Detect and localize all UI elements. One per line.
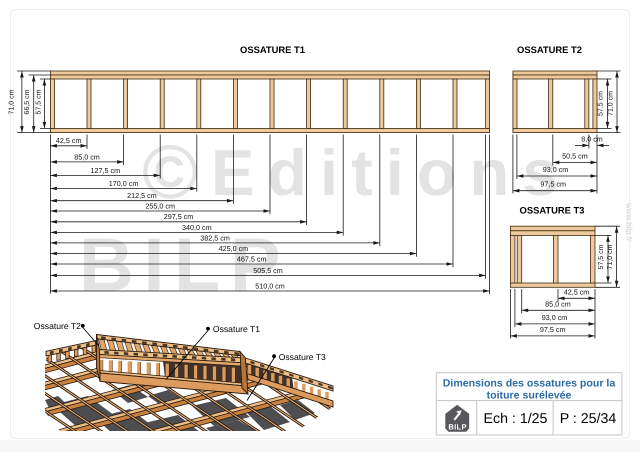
svg-text:97,5 cm: 97,5 cm [540,325,566,334]
svg-text:Ossature T3: Ossature T3 [279,352,326,362]
svg-text:382,5 cm: 382,5 cm [200,233,230,242]
svg-text:OSSATURE T3: OSSATURE T3 [520,205,585,216]
svg-text:Ossature T1: Ossature T1 [213,324,260,334]
svg-text:71,0 cm: 71,0 cm [607,91,614,116]
svg-text:50,5 cm: 50,5 cm [562,151,588,160]
svg-text:467,5 cm: 467,5 cm [237,254,267,263]
svg-text:42,5 cm: 42,5 cm [564,287,590,296]
svg-text:Dimensions des ossatures pour: Dimensions des ossatures pour la [443,377,616,389]
svg-text:212,5 cm: 212,5 cm [127,191,157,200]
svg-text:57,5 cm: 57,5 cm [598,244,605,269]
svg-text:340,0 cm: 340,0 cm [182,223,212,232]
svg-text:255,0 cm: 255,0 cm [145,201,175,210]
svg-text:66,5 cm: 66,5 cm [24,89,31,114]
svg-text:42,5 cm: 42,5 cm [56,136,82,145]
svg-text:8,0 cm: 8,0 cm [581,134,603,143]
svg-text:170,0 cm: 170,0 cm [109,179,139,188]
svg-text:85,0 cm: 85,0 cm [545,299,571,308]
svg-text:127,5 cm: 127,5 cm [91,166,121,175]
svg-text:71,0 cm: 71,0 cm [607,244,614,269]
svg-text:97,5 cm: 97,5 cm [540,180,566,189]
svg-text:93,0 cm: 93,0 cm [542,313,568,322]
svg-text:P : 25/34: P : 25/34 [560,411,617,427]
svg-text:57,5 cm: 57,5 cm [598,91,605,116]
svg-text:BILP: BILP [448,422,467,431]
svg-text:505,5 cm: 505,5 cm [253,266,283,275]
svg-text:57,5 cm: 57,5 cm [36,89,43,114]
svg-text:93,0 cm: 93,0 cm [543,165,569,174]
svg-text:425,0 cm: 425,0 cm [219,244,249,253]
svg-text:OSSATURE T2: OSSATURE T2 [517,44,582,55]
svg-text:Ech : 1/25: Ech : 1/25 [484,411,548,427]
svg-text:85,0 cm: 85,0 cm [74,152,100,161]
svg-text:Ossature T2: Ossature T2 [34,321,81,331]
svg-text:OSSATURE T1: OSSATURE T1 [240,44,305,55]
svg-text:toiture surélevée: toiture surélevée [487,389,572,401]
svg-text:510,0 cm: 510,0 cm [255,281,285,290]
svg-text:297,5 cm: 297,5 cm [164,212,194,221]
svg-text:71,0 cm: 71,0 cm [9,89,16,114]
svg-text:Editions: Editions [211,136,571,209]
